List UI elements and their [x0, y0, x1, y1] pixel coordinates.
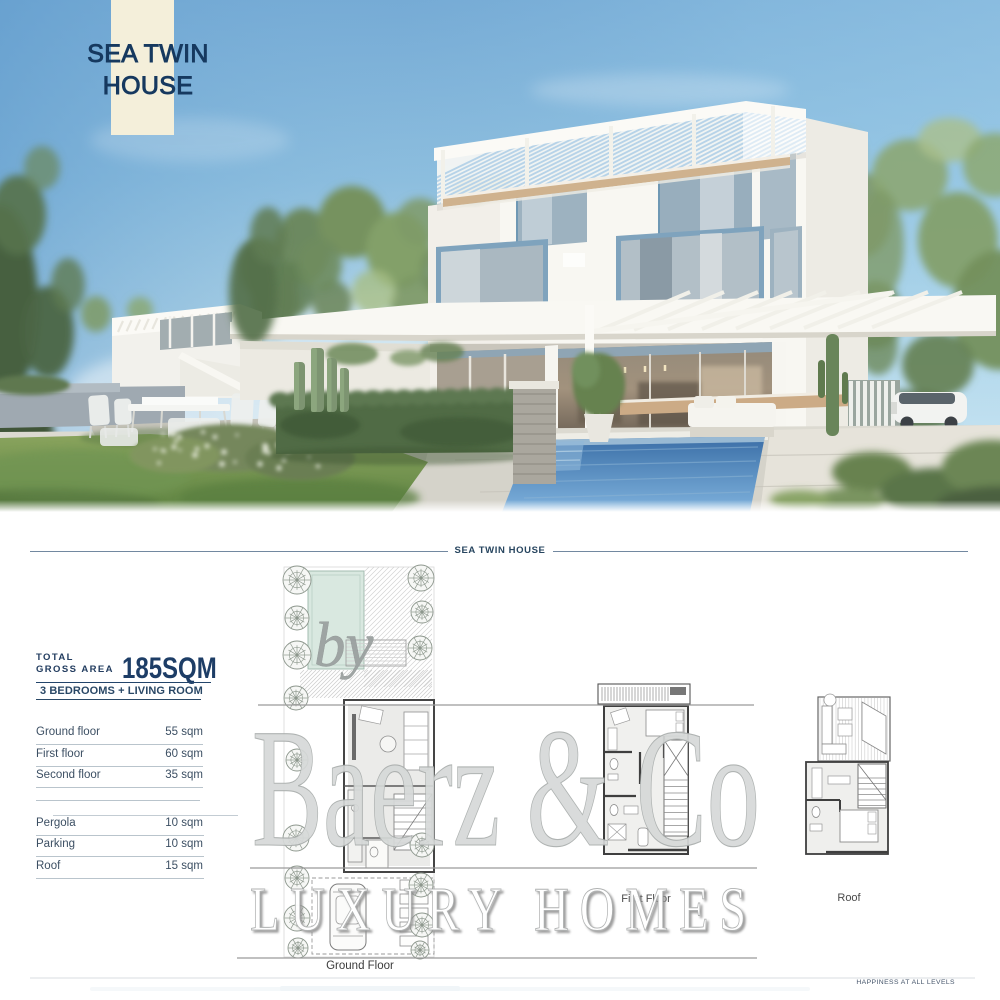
svg-text:Baerz & Co: Baerz & Co: [252, 694, 760, 882]
svg-text:Roof: Roof: [837, 892, 861, 904]
svg-text:by: by: [314, 610, 374, 680]
svg-text:Ground Floor: Ground Floor: [326, 960, 394, 972]
svg-text:LUXURY HOMES: LUXURY HOMES: [250, 876, 757, 944]
